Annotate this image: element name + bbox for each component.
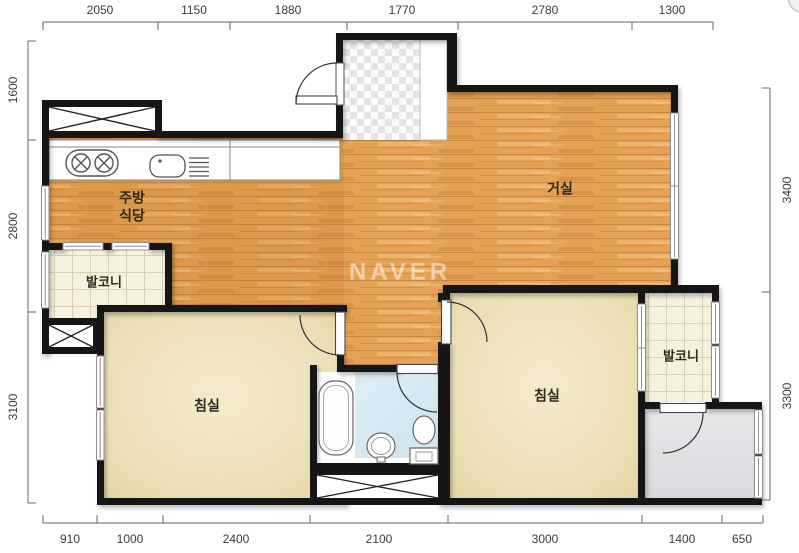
room-label-bedroom-right: 침실 <box>534 388 560 404</box>
floor-plan-image: 2050 1150 1880 1770 2780 1300 910 1000 2… <box>0 0 799 553</box>
dimension-label: 2800 <box>6 212 20 239</box>
window <box>97 356 105 408</box>
dimension-label: 2400 <box>223 532 250 546</box>
duct-shaft-bottom <box>310 468 445 505</box>
window <box>97 410 105 460</box>
dimension-label: 1000 <box>117 532 144 546</box>
dimension-label: 3400 <box>780 176 794 203</box>
window <box>42 252 50 308</box>
dimension-label: 1880 <box>275 3 302 17</box>
duct-shaft-left <box>42 318 100 354</box>
window <box>712 346 720 398</box>
dimension-label: 1300 <box>659 3 686 17</box>
naver-watermark: NAVER <box>349 258 451 285</box>
room-label-living: 거실 <box>547 181 573 197</box>
dimension-label: 2100 <box>366 532 393 546</box>
window <box>42 186 50 240</box>
dimension-label: 3000 <box>532 532 559 546</box>
dimension-chain-left <box>28 41 36 503</box>
corner-widget <box>788 0 799 13</box>
window <box>638 304 646 391</box>
room-label-balcony-right: 발코니 <box>663 348 699 363</box>
dimension-chain-right <box>762 88 770 500</box>
dimension-label: 2780 <box>532 3 559 17</box>
duct-shaft-top-left <box>42 100 162 138</box>
dimension-label: 3300 <box>780 382 794 409</box>
floor-entrance-side <box>420 40 447 140</box>
dimension-chain-top <box>43 22 713 30</box>
kitchen-sink-symbol <box>150 155 185 177</box>
floor-balcony-left-sliver <box>49 312 97 318</box>
room-label-balcony-left: 발코니 <box>86 274 122 289</box>
dimension-chain-bottom <box>43 515 763 523</box>
room-label-kitchen-line1: 주방 <box>119 190 145 206</box>
window <box>112 243 149 251</box>
floor-plan-canvas: 2050 1150 1880 1770 2780 1300 910 1000 2… <box>0 0 799 553</box>
window <box>755 410 763 454</box>
stove-symbol <box>66 150 118 176</box>
dimension-label: 1770 <box>389 3 416 17</box>
bathtub-symbol <box>319 381 353 455</box>
dimension-label: 650 <box>732 532 752 546</box>
window <box>712 302 720 344</box>
room-label-kitchen-line2: 식당 <box>119 208 145 224</box>
dimension-label: 2050 <box>87 3 114 17</box>
dimension-label: 1600 <box>6 76 20 103</box>
window <box>63 243 103 251</box>
dimension-label: 1150 <box>181 3 207 17</box>
dimension-label: 3100 <box>6 393 20 420</box>
floor-bedroom-left <box>104 312 337 498</box>
window <box>755 456 763 498</box>
room-label-bedroom-left: 침실 <box>194 398 220 414</box>
kitchen-counter <box>49 140 340 180</box>
window <box>671 113 679 259</box>
dimension-label: 1400 <box>669 532 696 546</box>
floor-utility-room <box>645 409 755 498</box>
door-entrance <box>296 63 344 105</box>
dimension-label: 910 <box>60 532 80 546</box>
floor-entrance-checker <box>343 40 420 140</box>
